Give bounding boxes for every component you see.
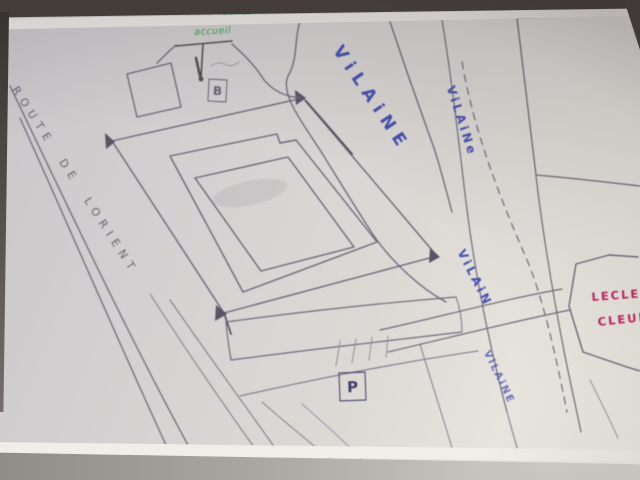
crossing-road <box>380 289 570 352</box>
green-note-line2: accueil <box>194 25 231 38</box>
leclerc-octagon <box>569 255 640 438</box>
parking-marker-box: P <box>339 372 367 402</box>
right-side-roads <box>442 20 581 455</box>
esplanade-band <box>226 297 462 360</box>
marker-b-letter: B <box>213 83 223 97</box>
parking-marker-letter: P <box>347 377 359 395</box>
building-rectangle <box>517 14 640 186</box>
photo-of-hand-drawn-map: ROUTE DE LORIENT ViLAiNE ViLAiNe ViLAiN … <box>0 0 640 480</box>
marker-b-box: B <box>207 79 227 103</box>
map-sketch: ROUTE DE LORIENT ViLAiNE ViLAiNe ViLAiN … <box>0 0 640 480</box>
signpost-icon <box>176 41 232 81</box>
map-sketch-drawing <box>0 0 640 480</box>
